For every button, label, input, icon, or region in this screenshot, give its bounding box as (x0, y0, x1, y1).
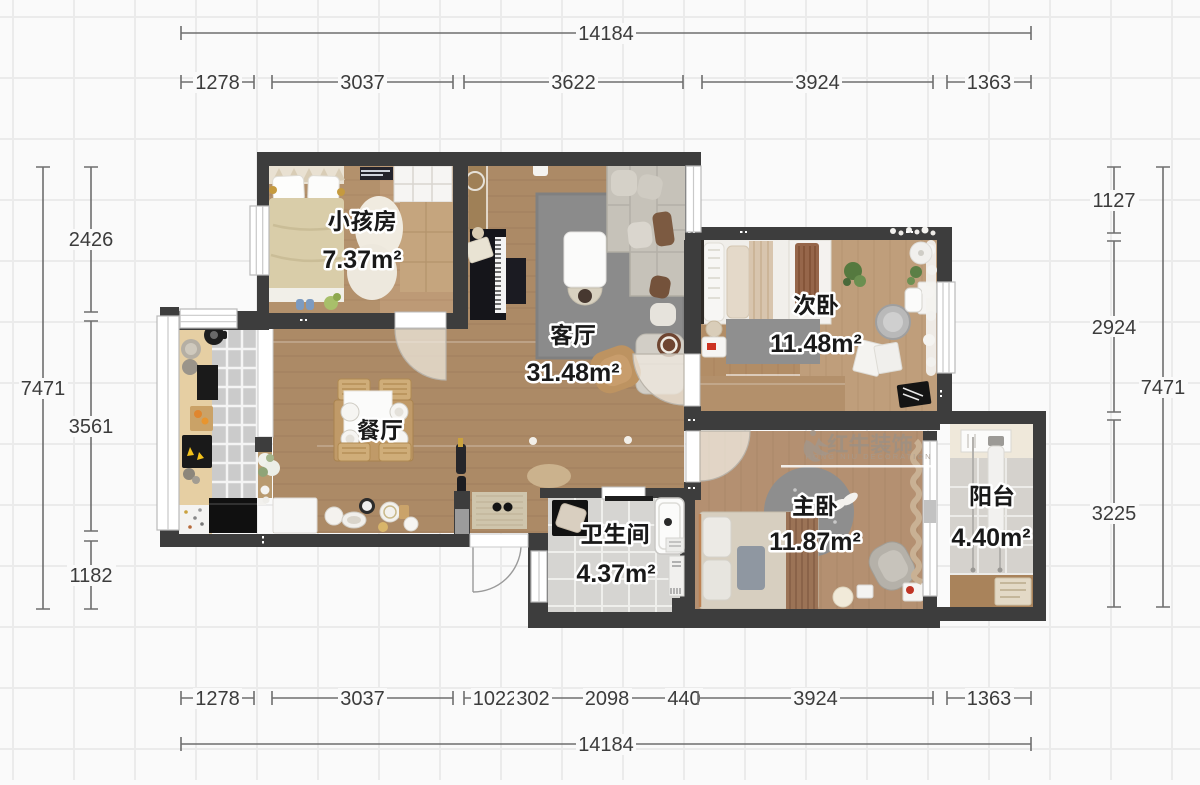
svg-text:7471: 7471 (1141, 377, 1186, 399)
svg-text:2924: 2924 (1092, 317, 1137, 339)
svg-text:1182: 1182 (69, 565, 112, 587)
svg-text:1022: 1022 (473, 688, 518, 710)
svg-text:11.87m²: 11.87m² (769, 528, 861, 556)
svg-text:2098: 2098 (585, 688, 630, 710)
svg-text:11.48m²: 11.48m² (770, 330, 862, 358)
svg-text:3561: 3561 (69, 416, 114, 438)
svg-text:1278: 1278 (195, 72, 240, 94)
svg-text:3924: 3924 (793, 688, 838, 710)
svg-text:3037: 3037 (340, 72, 385, 94)
svg-text:4.37m²: 4.37m² (576, 560, 655, 588)
svg-text:4.40m²: 4.40m² (951, 524, 1030, 552)
svg-text:2426: 2426 (69, 229, 114, 251)
svg-text:1278: 1278 (195, 688, 240, 710)
svg-text:31.48m²: 31.48m² (526, 359, 619, 387)
svg-text:1127: 1127 (1092, 190, 1135, 212)
svg-text:3924: 3924 (795, 72, 840, 94)
svg-text:302: 302 (516, 688, 549, 710)
svg-text:14184: 14184 (578, 23, 634, 45)
svg-text:7471: 7471 (21, 378, 66, 400)
svg-text:7.37m²: 7.37m² (322, 246, 401, 274)
svg-text:3622: 3622 (551, 72, 596, 94)
svg-text:3225: 3225 (1092, 503, 1137, 525)
svg-text:1363: 1363 (967, 72, 1012, 94)
svg-text:440: 440 (667, 688, 700, 710)
svg-text:HONG NIU DECORATION: HONG NIU DECORATION (805, 452, 932, 461)
svg-text:1363: 1363 (967, 688, 1012, 710)
svg-text:14184: 14184 (578, 734, 634, 756)
svg-text:3037: 3037 (340, 688, 385, 710)
